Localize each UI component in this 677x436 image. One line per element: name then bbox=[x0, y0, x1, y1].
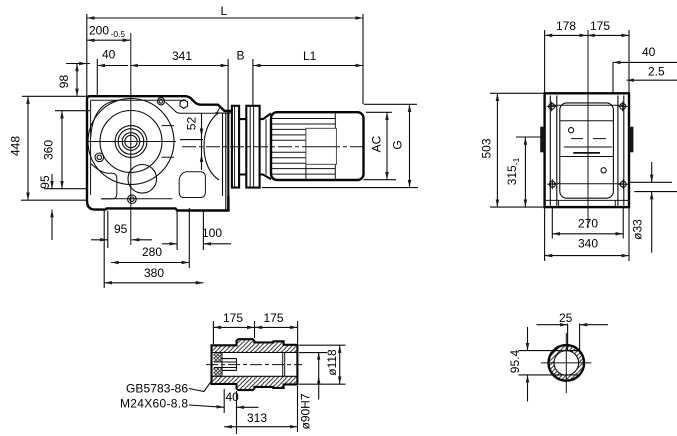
svg-text:G: G bbox=[391, 140, 405, 149]
svg-text:270: 270 bbox=[578, 217, 598, 231]
svg-text:B: B bbox=[237, 49, 245, 63]
svg-text:L: L bbox=[221, 4, 228, 18]
svg-text:ø33: ø33 bbox=[631, 219, 645, 240]
svg-text:175: 175 bbox=[590, 19, 610, 33]
svg-text:380: 380 bbox=[144, 266, 164, 280]
svg-text:448: 448 bbox=[9, 136, 23, 156]
svg-text:L1: L1 bbox=[303, 49, 317, 63]
svg-text:ø118: ø118 bbox=[325, 349, 339, 376]
svg-text:40: 40 bbox=[642, 45, 656, 59]
svg-text:40: 40 bbox=[226, 390, 240, 404]
svg-text:-0.5: -0.5 bbox=[111, 29, 126, 39]
svg-text:340: 340 bbox=[578, 237, 598, 251]
svg-text:52: 52 bbox=[185, 117, 199, 131]
svg-text:95: 95 bbox=[38, 175, 52, 189]
svg-text:95.4: 95.4 bbox=[508, 349, 522, 373]
svg-text:313: 313 bbox=[247, 411, 267, 425]
svg-text:AC: AC bbox=[370, 135, 384, 152]
svg-text:25: 25 bbox=[559, 311, 573, 325]
svg-text:M24X60-8.8: M24X60-8.8 bbox=[120, 397, 188, 411]
svg-text:175: 175 bbox=[223, 311, 243, 325]
svg-text:100: 100 bbox=[202, 226, 222, 240]
svg-text:178: 178 bbox=[556, 19, 576, 33]
svg-text:280: 280 bbox=[142, 245, 162, 259]
svg-text:95: 95 bbox=[114, 222, 128, 236]
svg-text:GB5783-86: GB5783-86 bbox=[126, 382, 188, 396]
svg-text:98: 98 bbox=[57, 75, 71, 89]
svg-text:2.5: 2.5 bbox=[648, 65, 665, 79]
svg-text:503: 503 bbox=[480, 138, 494, 158]
svg-text:175: 175 bbox=[264, 311, 284, 325]
svg-text:ø90H7: ø90H7 bbox=[299, 393, 313, 429]
svg-text:341: 341 bbox=[172, 49, 192, 63]
svg-text:200: 200 bbox=[89, 24, 109, 38]
svg-text:40: 40 bbox=[102, 48, 116, 62]
svg-text:360: 360 bbox=[42, 140, 56, 160]
